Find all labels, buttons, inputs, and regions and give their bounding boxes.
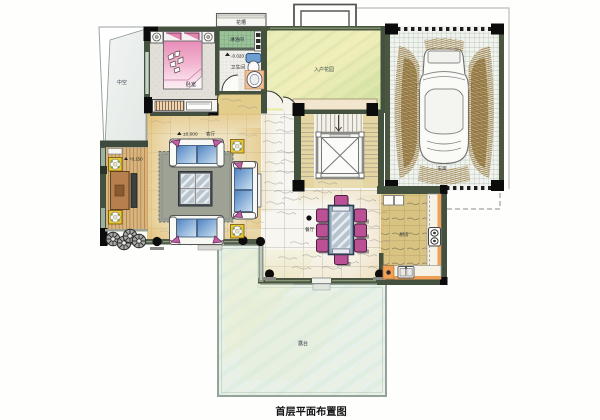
svg-text:餐厅: 餐厅 (305, 226, 315, 233)
svg-text:中空: 中空 (117, 79, 127, 86)
svg-text:±0.000: ±0.000 (183, 132, 198, 138)
svg-text:客厅: 客厅 (206, 131, 216, 138)
svg-text:花槽: 花槽 (236, 19, 246, 26)
svg-text:首层平面布置图: 首层平面布置图 (275, 405, 346, 418)
svg-text:卫生间: 卫生间 (231, 64, 246, 71)
svg-text:厨房: 厨房 (399, 231, 409, 238)
svg-text:卧室: 卧室 (186, 80, 196, 88)
svg-text:车库: 车库 (437, 165, 447, 172)
svg-text:露台: 露台 (298, 340, 308, 347)
svg-text:+0.150: +0.150 (129, 157, 143, 162)
svg-text:入户花园: 入户花园 (314, 66, 334, 73)
svg-text:-0.020: -0.020 (231, 54, 244, 59)
svg-text:淋浴间: 淋浴间 (230, 36, 244, 43)
